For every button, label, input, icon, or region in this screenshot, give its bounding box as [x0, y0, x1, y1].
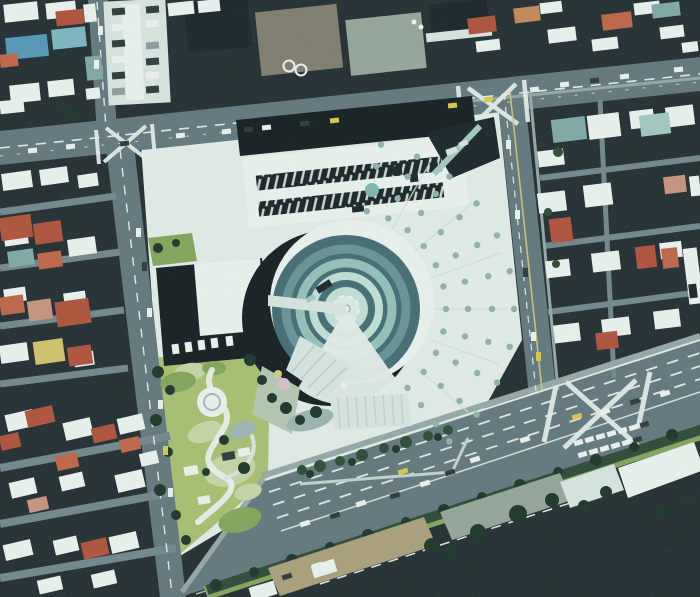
aerial-photograph [0, 0, 700, 597]
aerial-photo-stage [0, 0, 700, 597]
cyan-cast-overlay [0, 0, 700, 597]
scene-layers [0, 0, 700, 597]
